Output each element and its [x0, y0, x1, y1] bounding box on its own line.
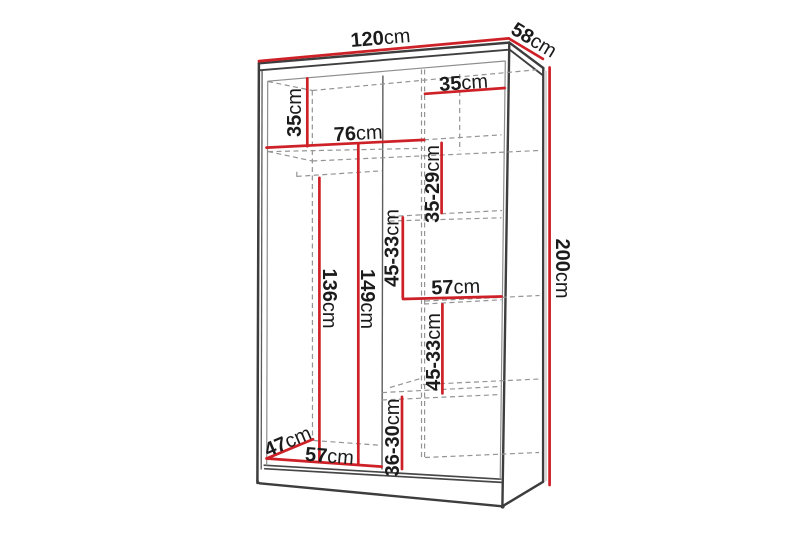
svg-text:45-33cm: 45-33cm [382, 209, 404, 287]
svg-text:35cm: 35cm [438, 71, 488, 96]
svg-text:45-33cm: 45-33cm [423, 313, 445, 391]
svg-text:149cm: 149cm [356, 269, 378, 329]
svg-text:36-30cm: 36-30cm [382, 399, 404, 477]
svg-text:57cm: 57cm [304, 444, 354, 470]
svg-text:35cm: 35cm [284, 88, 306, 137]
svg-text:136cm: 136cm [318, 268, 340, 328]
svg-text:35-29cm: 35-29cm [422, 145, 444, 223]
svg-text:57cm: 57cm [431, 276, 481, 300]
svg-text:200cm: 200cm [551, 238, 573, 298]
